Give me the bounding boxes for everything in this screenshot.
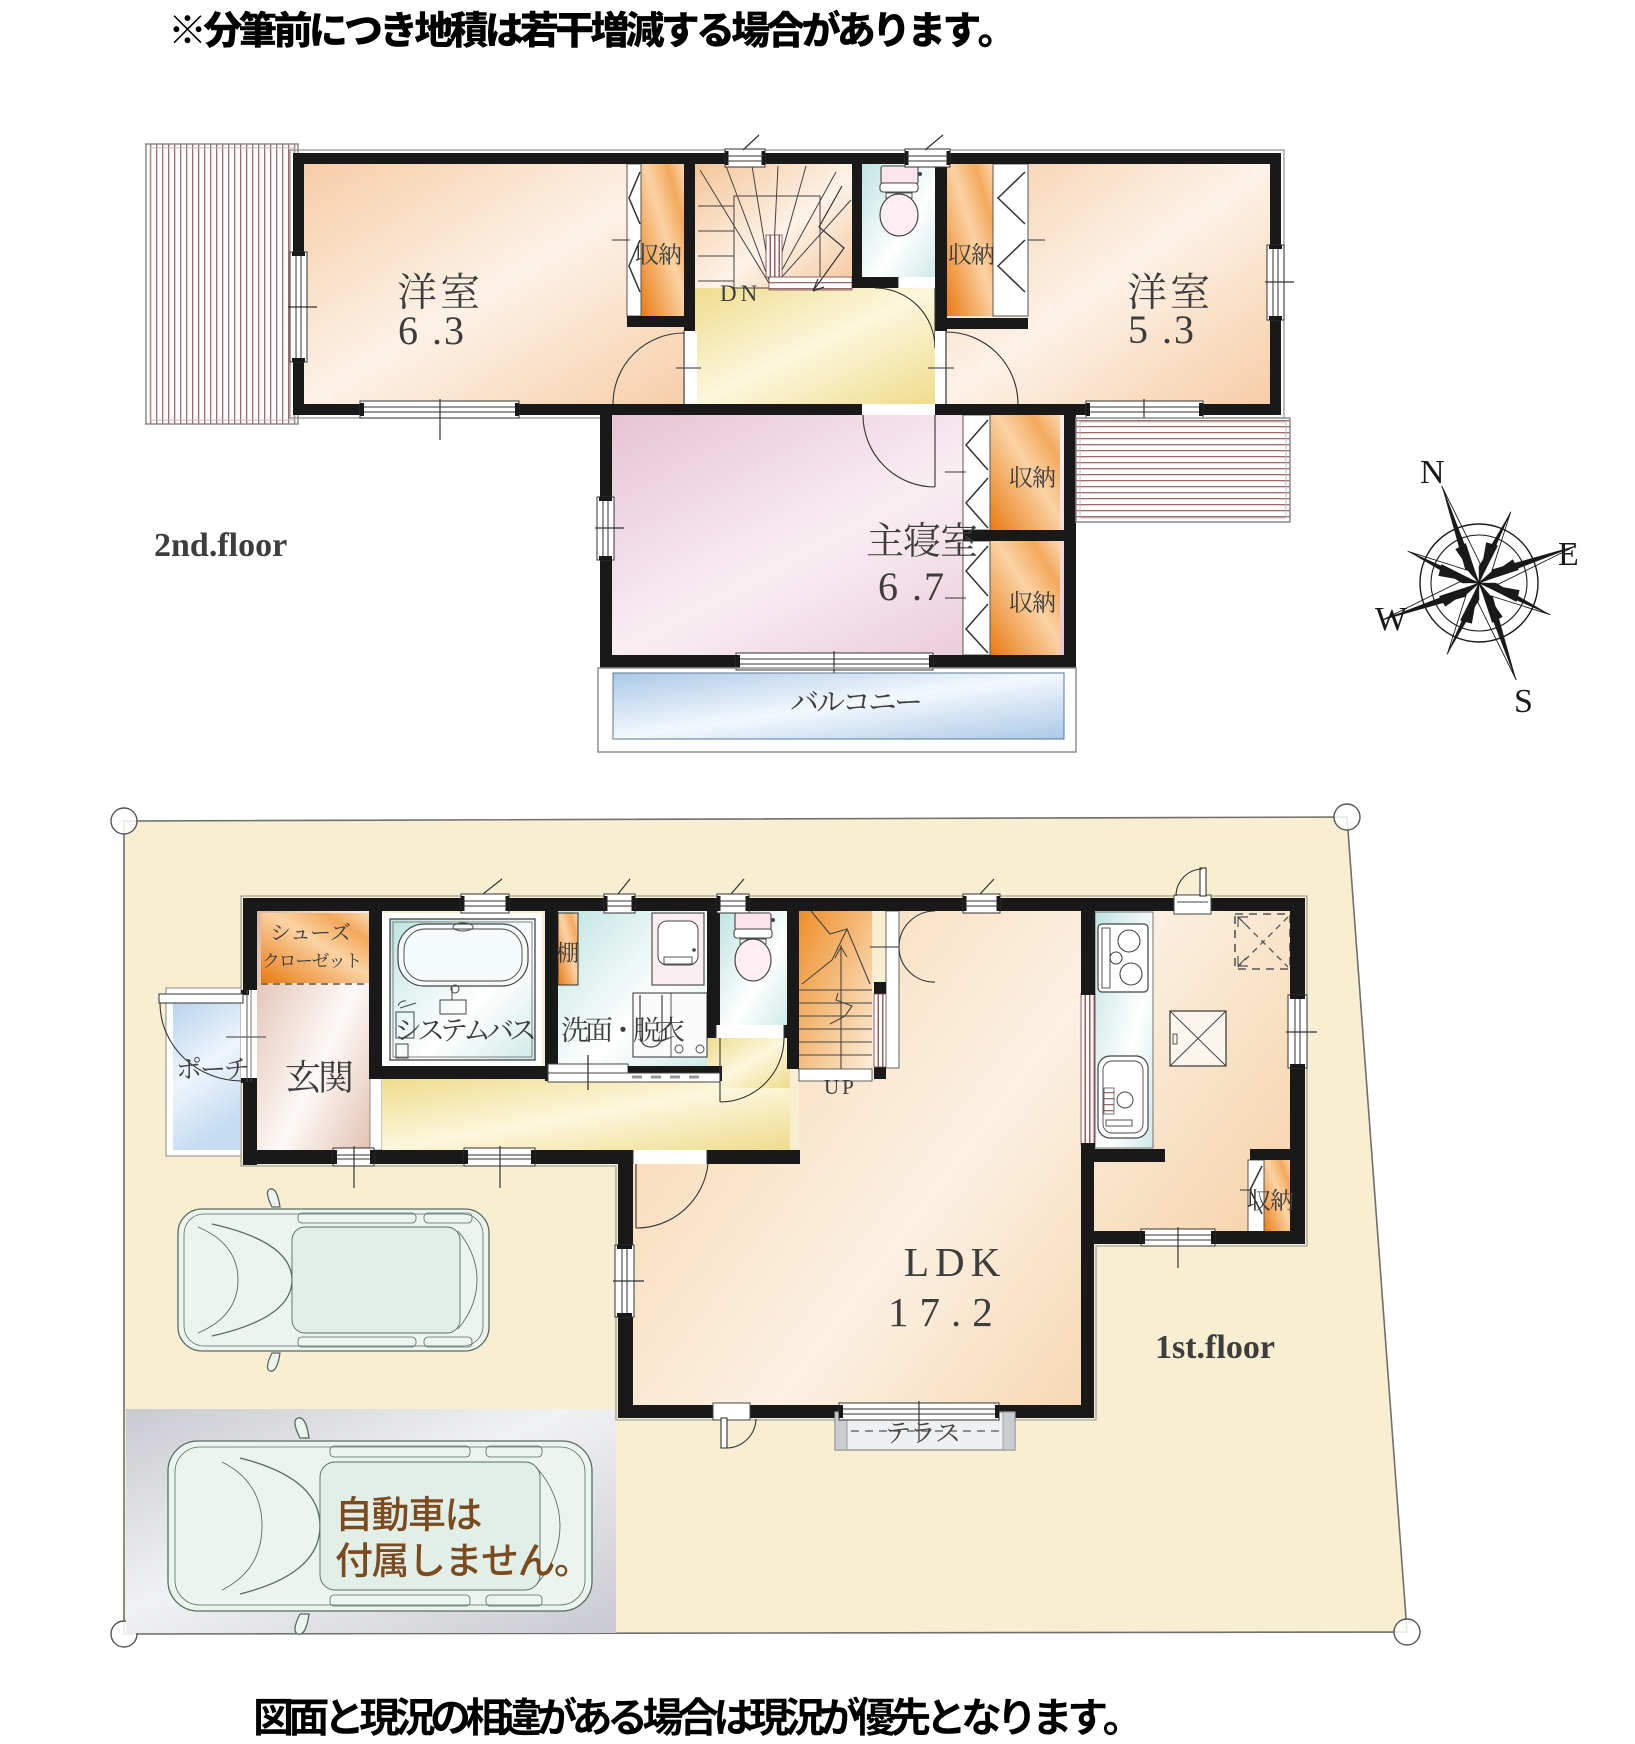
- svg-text:S: S: [1514, 683, 1533, 720]
- svg-text:6 .3: 6 .3: [398, 308, 466, 353]
- svg-text:1st.floor: 1st.floor: [1155, 1329, 1275, 1366]
- svg-text:N: N: [1420, 454, 1445, 491]
- svg-text:6 .7: 6 .7: [878, 564, 946, 609]
- svg-text:LDK: LDK: [904, 1239, 1006, 1285]
- svg-text:17.2: 17.2: [888, 1289, 1004, 1335]
- svg-text:DN: DN: [720, 281, 761, 306]
- svg-text:E: E: [1558, 536, 1579, 573]
- svg-text:UP: UP: [824, 1075, 857, 1099]
- svg-text:W: W: [1375, 601, 1408, 638]
- svg-text:5 .3: 5 .3: [1128, 307, 1196, 352]
- svg-text:2nd.floor: 2nd.floor: [154, 527, 287, 564]
